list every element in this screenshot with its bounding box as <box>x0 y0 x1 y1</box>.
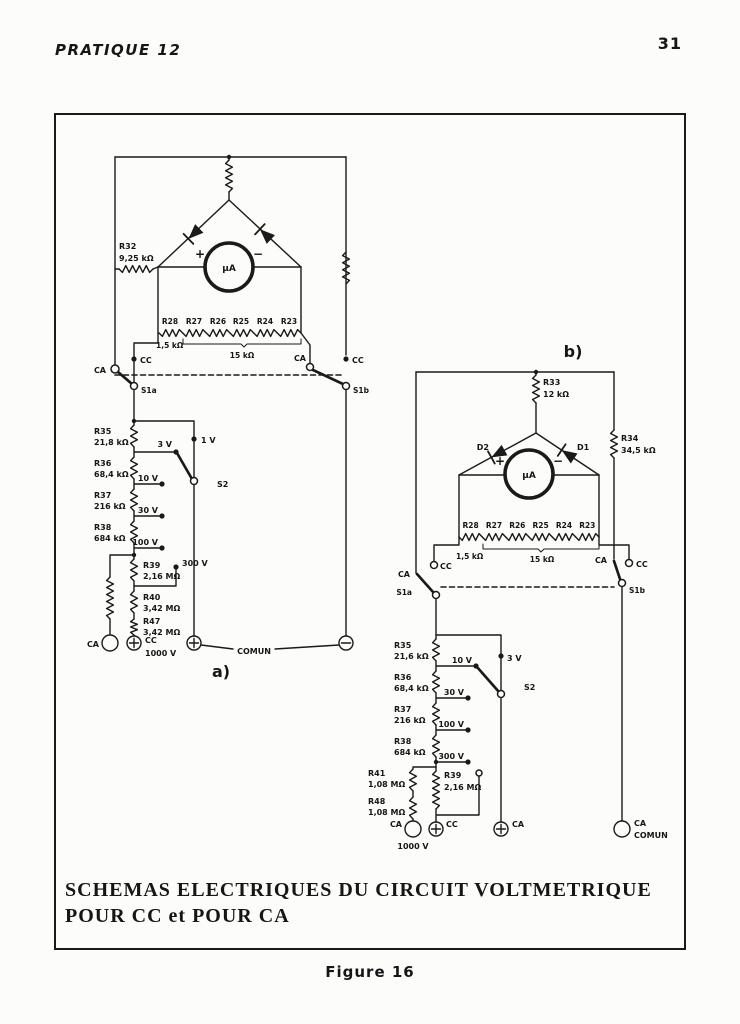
r34-name: R34 <box>621 434 639 443</box>
meter-unit-label: µA <box>222 264 236 274</box>
r48-name: R48 <box>368 797 386 806</box>
bank-a-r26-label: R26 <box>210 317 226 326</box>
pole-s1a-a <box>131 383 138 390</box>
bank-b-r27-label: R27 <box>486 521 502 530</box>
terminal-ca-plus-b <box>494 822 508 836</box>
meter-plus-sign-b: + <box>495 454 505 468</box>
d2-label: D2 <box>477 443 489 452</box>
r35-name-b: R35 <box>394 641 412 650</box>
terminal-cc-label-a: CC <box>145 636 157 645</box>
r41-value: 1,08 MΩ <box>368 780 405 789</box>
contact-ca-left-a <box>111 365 119 373</box>
contact-cc-left-b <box>431 562 438 569</box>
tap-300v-a: 300 V <box>182 559 208 568</box>
r36-value-b: 68,4 kΩ <box>394 684 429 693</box>
terminal-cc-1000v-a <box>127 636 141 650</box>
bank-b-r27 <box>482 534 505 541</box>
tap-100v-b: 100 V <box>438 720 464 729</box>
r37-value-b: 216 kΩ <box>394 716 426 725</box>
r38-name-b: R38 <box>394 737 412 746</box>
circuit-a-label: a) <box>212 662 230 681</box>
bank-b-r26 <box>506 534 529 541</box>
ca-left-label-a: CA <box>94 366 107 375</box>
terminal-plus-a <box>187 636 201 650</box>
meter-minus-sign-b: − <box>553 454 563 468</box>
terminal-ca2-label-b: CA <box>512 820 525 829</box>
resistor-r37 <box>131 489 138 511</box>
s2-label-a: S2 <box>217 480 228 489</box>
r47-name-a: R47 <box>143 617 160 626</box>
tap-100v-a: 100 V <box>132 538 158 547</box>
bank-a-r28-label: R28 <box>162 317 178 326</box>
meter-plus-sign: + <box>195 247 205 261</box>
ca-right-label-a: CA <box>294 354 307 363</box>
page-number: 31 <box>658 34 682 53</box>
tap-1v-a: 1 V <box>201 436 216 445</box>
bank-b-first-value: 1,5 kΩ <box>456 552 484 561</box>
resistor-r36-b <box>433 671 440 693</box>
bank-r26 <box>206 330 230 337</box>
r37-value-a: 216 kΩ <box>94 502 126 511</box>
r33-value: 12 kΩ <box>543 390 569 399</box>
cc-right-label-b: CC <box>636 560 648 569</box>
r34-value: 34,5 kΩ <box>621 446 656 455</box>
r39-name-a: R39 <box>143 561 161 570</box>
ca-left-label-b: CA <box>398 570 411 579</box>
booklet-title: PRATIQUE 12 <box>55 41 181 59</box>
s1b-label-a: S1b <box>353 386 370 395</box>
bank-a-group-value: 15 kΩ <box>230 351 255 360</box>
s1b-label-b: S1b <box>629 586 646 595</box>
resistor-r39-b <box>433 771 440 809</box>
bank-r23 <box>277 330 301 337</box>
terminal-ca-label-a: CA <box>87 640 100 649</box>
bridge-top-resistor <box>226 160 233 192</box>
r36-name-a: R36 <box>94 459 112 468</box>
bank-a-r23-label: R23 <box>281 317 297 326</box>
circuit-a: µA + − <box>87 155 370 681</box>
microammeter-b: µA + − <box>495 450 563 498</box>
pole-s1b-a <box>343 383 350 390</box>
pole-s1a-b <box>433 592 440 599</box>
resistor-r33 <box>533 375 540 403</box>
bank-b-r25 <box>529 534 552 541</box>
terminal-comun-label1-b: CA <box>634 819 647 828</box>
cc-right-label-a: CC <box>352 356 364 365</box>
tap-3v-b: 3 V <box>507 654 522 663</box>
terminal-ca-a <box>102 635 118 651</box>
figure-title-line1: SCHEMAS ELECTRIQUES DU CIRCUIT VOLTMETRI… <box>65 877 681 903</box>
bank-r24 <box>254 330 278 337</box>
resistor-r47 <box>131 619 138 635</box>
bank-b-group-value: 15 kΩ <box>530 555 555 564</box>
s1a-label-a: S1a <box>141 386 157 395</box>
tap-10v-b: 10 V <box>452 656 473 665</box>
microammeter-a: µA + − <box>195 243 263 291</box>
bank-r27 <box>183 330 207 337</box>
r37-name-b: R37 <box>394 705 411 714</box>
terminal-ca-comun-b <box>614 821 630 837</box>
r48-value: 1,08 MΩ <box>368 808 405 817</box>
circuit-b-label: b) <box>564 342 583 361</box>
resistor-r40 <box>131 591 138 613</box>
r35-name-a: R35 <box>94 427 112 436</box>
resistor-r36 <box>131 457 138 479</box>
bridge-right-resistor <box>343 252 350 284</box>
resistor-r32 <box>119 266 153 273</box>
resistor-r35-b <box>433 639 440 661</box>
bank-b-r25-label: R25 <box>532 521 548 530</box>
scanned-page: PRATIQUE 12 31 <box>0 0 740 1024</box>
terminal-minus-a <box>339 636 353 650</box>
bank-brace-a <box>183 339 301 347</box>
bank-a-r27-label: R27 <box>186 317 202 326</box>
r32-name: R32 <box>119 242 136 251</box>
resistor-r41 <box>410 769 417 791</box>
pole-s2-b <box>498 691 505 698</box>
cc-left-label-b: CC <box>440 562 452 571</box>
tap-3v-a: 3 V <box>157 440 172 449</box>
d1-label: D1 <box>577 443 590 452</box>
terminal-ca-1000v-b <box>405 821 421 837</box>
r39-name-b: R39 <box>444 771 462 780</box>
bank-b-r24-label: R24 <box>556 521 572 530</box>
terminal-cc-b <box>429 822 443 836</box>
r41-name: R41 <box>368 769 386 778</box>
contact-ca-right-a <box>307 364 314 371</box>
terminal-ca-label-b: CA <box>390 820 403 829</box>
r37-name-a: R37 <box>94 491 111 500</box>
bank-b-r23-label: R23 <box>579 521 595 530</box>
bank-b-r28 <box>459 534 482 541</box>
bank-b-r24 <box>552 534 575 541</box>
tap-30v-a: 30 V <box>138 506 159 515</box>
bank-a-r25-label: R25 <box>233 317 249 326</box>
r35-value-b: 21,6 kΩ <box>394 652 429 661</box>
pole-s2-a <box>191 478 198 485</box>
r39-value-b: 2,16 MΩ <box>444 783 481 792</box>
figure-title-line2: POUR CC et POUR CA <box>65 903 681 929</box>
terminal-cc-value-a: 1000 V <box>145 649 177 658</box>
tap-300v-b: 300 V <box>438 752 464 761</box>
resistor-r48 <box>410 797 417 819</box>
contact-1000v-b <box>476 770 482 776</box>
ca-right-label-b: CA <box>595 556 608 565</box>
figure-caption: Figure 16 <box>0 963 740 981</box>
resistor-r35 <box>131 425 138 447</box>
bank-b-r26-label: R26 <box>509 521 525 530</box>
bank-b-r23 <box>576 534 599 541</box>
figure-frame: µA + − <box>54 113 686 950</box>
r36-name-b: R36 <box>394 673 412 682</box>
r40-name-a: R40 <box>143 593 161 602</box>
bank-b-r28-label: R28 <box>462 521 478 530</box>
tap-30v-b: 30 V <box>444 688 465 697</box>
terminal-cc-label-b: CC <box>446 820 458 829</box>
contact-cc-right-b <box>626 560 633 567</box>
meter-minus-sign: − <box>253 247 263 261</box>
figure-title-block: SCHEMAS ELECTRIQUES DU CIRCUIT VOLTMETRI… <box>65 877 681 929</box>
meter-unit-label-b: µA <box>522 471 536 481</box>
r35-value-a: 21,8 kΩ <box>94 438 129 447</box>
r38-name-a: R38 <box>94 523 112 532</box>
pole-s1b-b <box>619 580 626 587</box>
r38-value-b: 684 kΩ <box>394 748 426 757</box>
r38-value-a: 684 kΩ <box>94 534 126 543</box>
resistor-r34 <box>611 430 618 458</box>
r32-value: 9,25 kΩ <box>119 254 154 263</box>
terminal-ca-value-b: 1000 V <box>397 842 429 851</box>
r36-value-a: 68,4 kΩ <box>94 470 129 479</box>
r40-value-a: 3,42 MΩ <box>143 604 180 613</box>
ca-branch-resistor <box>107 577 114 619</box>
r33-name: R33 <box>543 378 560 387</box>
terminal-comun-label2-b: COMUN <box>634 831 668 840</box>
bank-a-r24-label: R24 <box>257 317 273 326</box>
tap-10v-a: 10 V <box>138 474 159 483</box>
r39-value-a: 2,16 MΩ <box>143 572 180 581</box>
s2-label-b: S2 <box>524 683 535 692</box>
schematic-figure: µA + − <box>56 115 684 873</box>
resistor-r39 <box>131 559 138 581</box>
comun-label-a: COMUN <box>237 647 271 656</box>
bank-r28 <box>159 330 183 337</box>
bank-r25 <box>230 330 254 337</box>
s1a-label-b: S1a <box>396 588 412 597</box>
bank-a-first-value: 1,5 kΩ <box>156 341 184 350</box>
circuit-b: µA + − <box>368 342 668 851</box>
cc-left-label-a: CC <box>140 356 152 365</box>
bank-brace-b <box>483 544 599 552</box>
